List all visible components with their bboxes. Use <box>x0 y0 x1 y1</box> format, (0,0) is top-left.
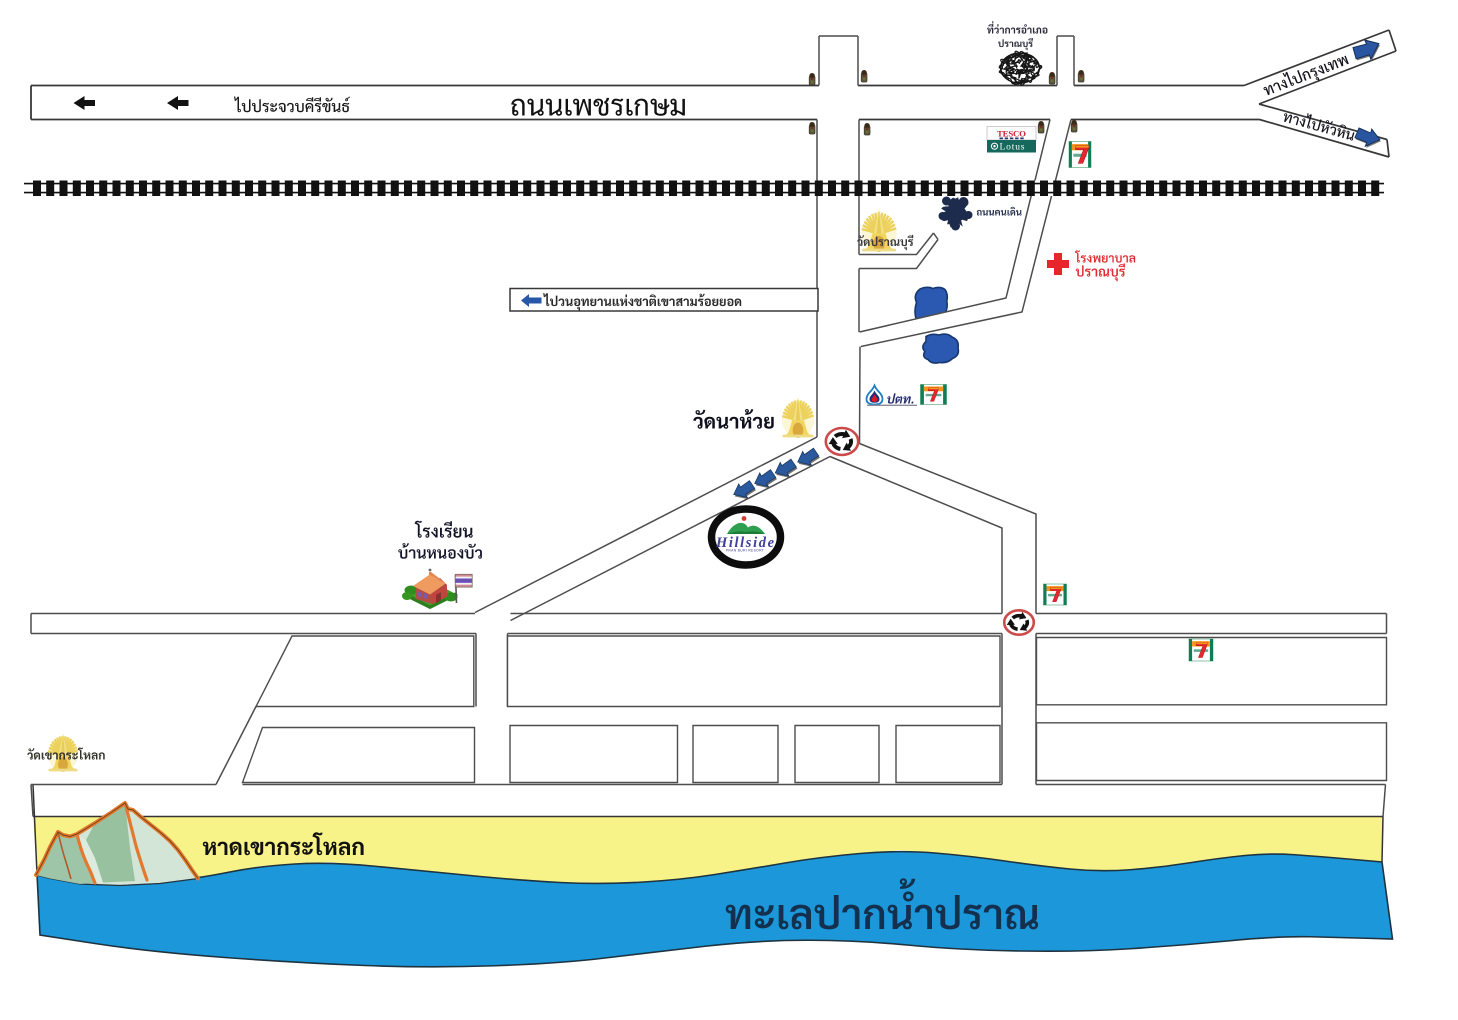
svg-text:TESCO: TESCO <box>997 129 1026 139</box>
svg-text:PRAN BURI RESORT: PRAN BURI RESORT <box>726 549 764 553</box>
svg-text:Lotus: Lotus <box>1000 143 1025 153</box>
